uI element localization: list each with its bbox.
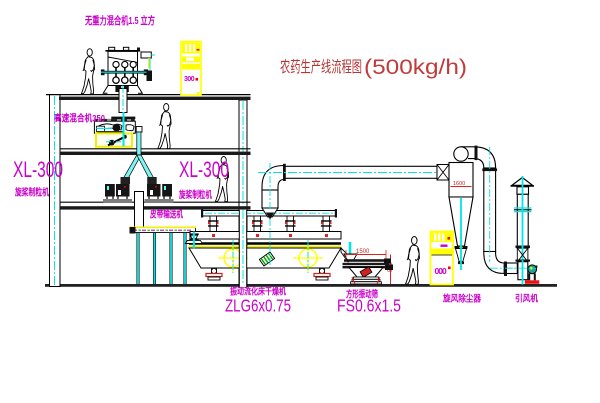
svg-text:高速混合机350: 高速混合机350 <box>54 113 105 125</box>
svg-text:引风机: 引风机 <box>515 293 538 304</box>
svg-text:无重力混合机1.5 立方: 无重力混合机1.5 立方 <box>84 14 155 27</box>
svg-text:ZLG6x0.75: ZLG6x0.75 <box>225 296 291 316</box>
svg-text:旋桨制粒机: 旋桨制粒机 <box>14 187 49 199</box>
svg-text:1600: 1600 <box>453 181 465 187</box>
svg-text:农药生产线流程图: 农药生产线流程图 <box>280 58 362 76</box>
svg-text:300: 300 <box>184 76 195 83</box>
svg-text:旋风除尘器: 旋风除尘器 <box>442 293 482 304</box>
svg-text:(500kg/h): (500kg/h) <box>364 56 467 79</box>
svg-text:FS0.6x1.5: FS0.6x1.5 <box>337 296 401 316</box>
svg-text:1500: 1500 <box>356 249 370 255</box>
svg-text:XL-300: XL-300 <box>13 157 63 182</box>
svg-text:XL-300: XL-300 <box>179 157 229 182</box>
svg-text:000: 000 <box>435 266 447 276</box>
svg-text:皮带输送机: 皮带输送机 <box>149 209 183 221</box>
svg-text:旋桨制粒机: 旋桨制粒机 <box>178 189 212 201</box>
